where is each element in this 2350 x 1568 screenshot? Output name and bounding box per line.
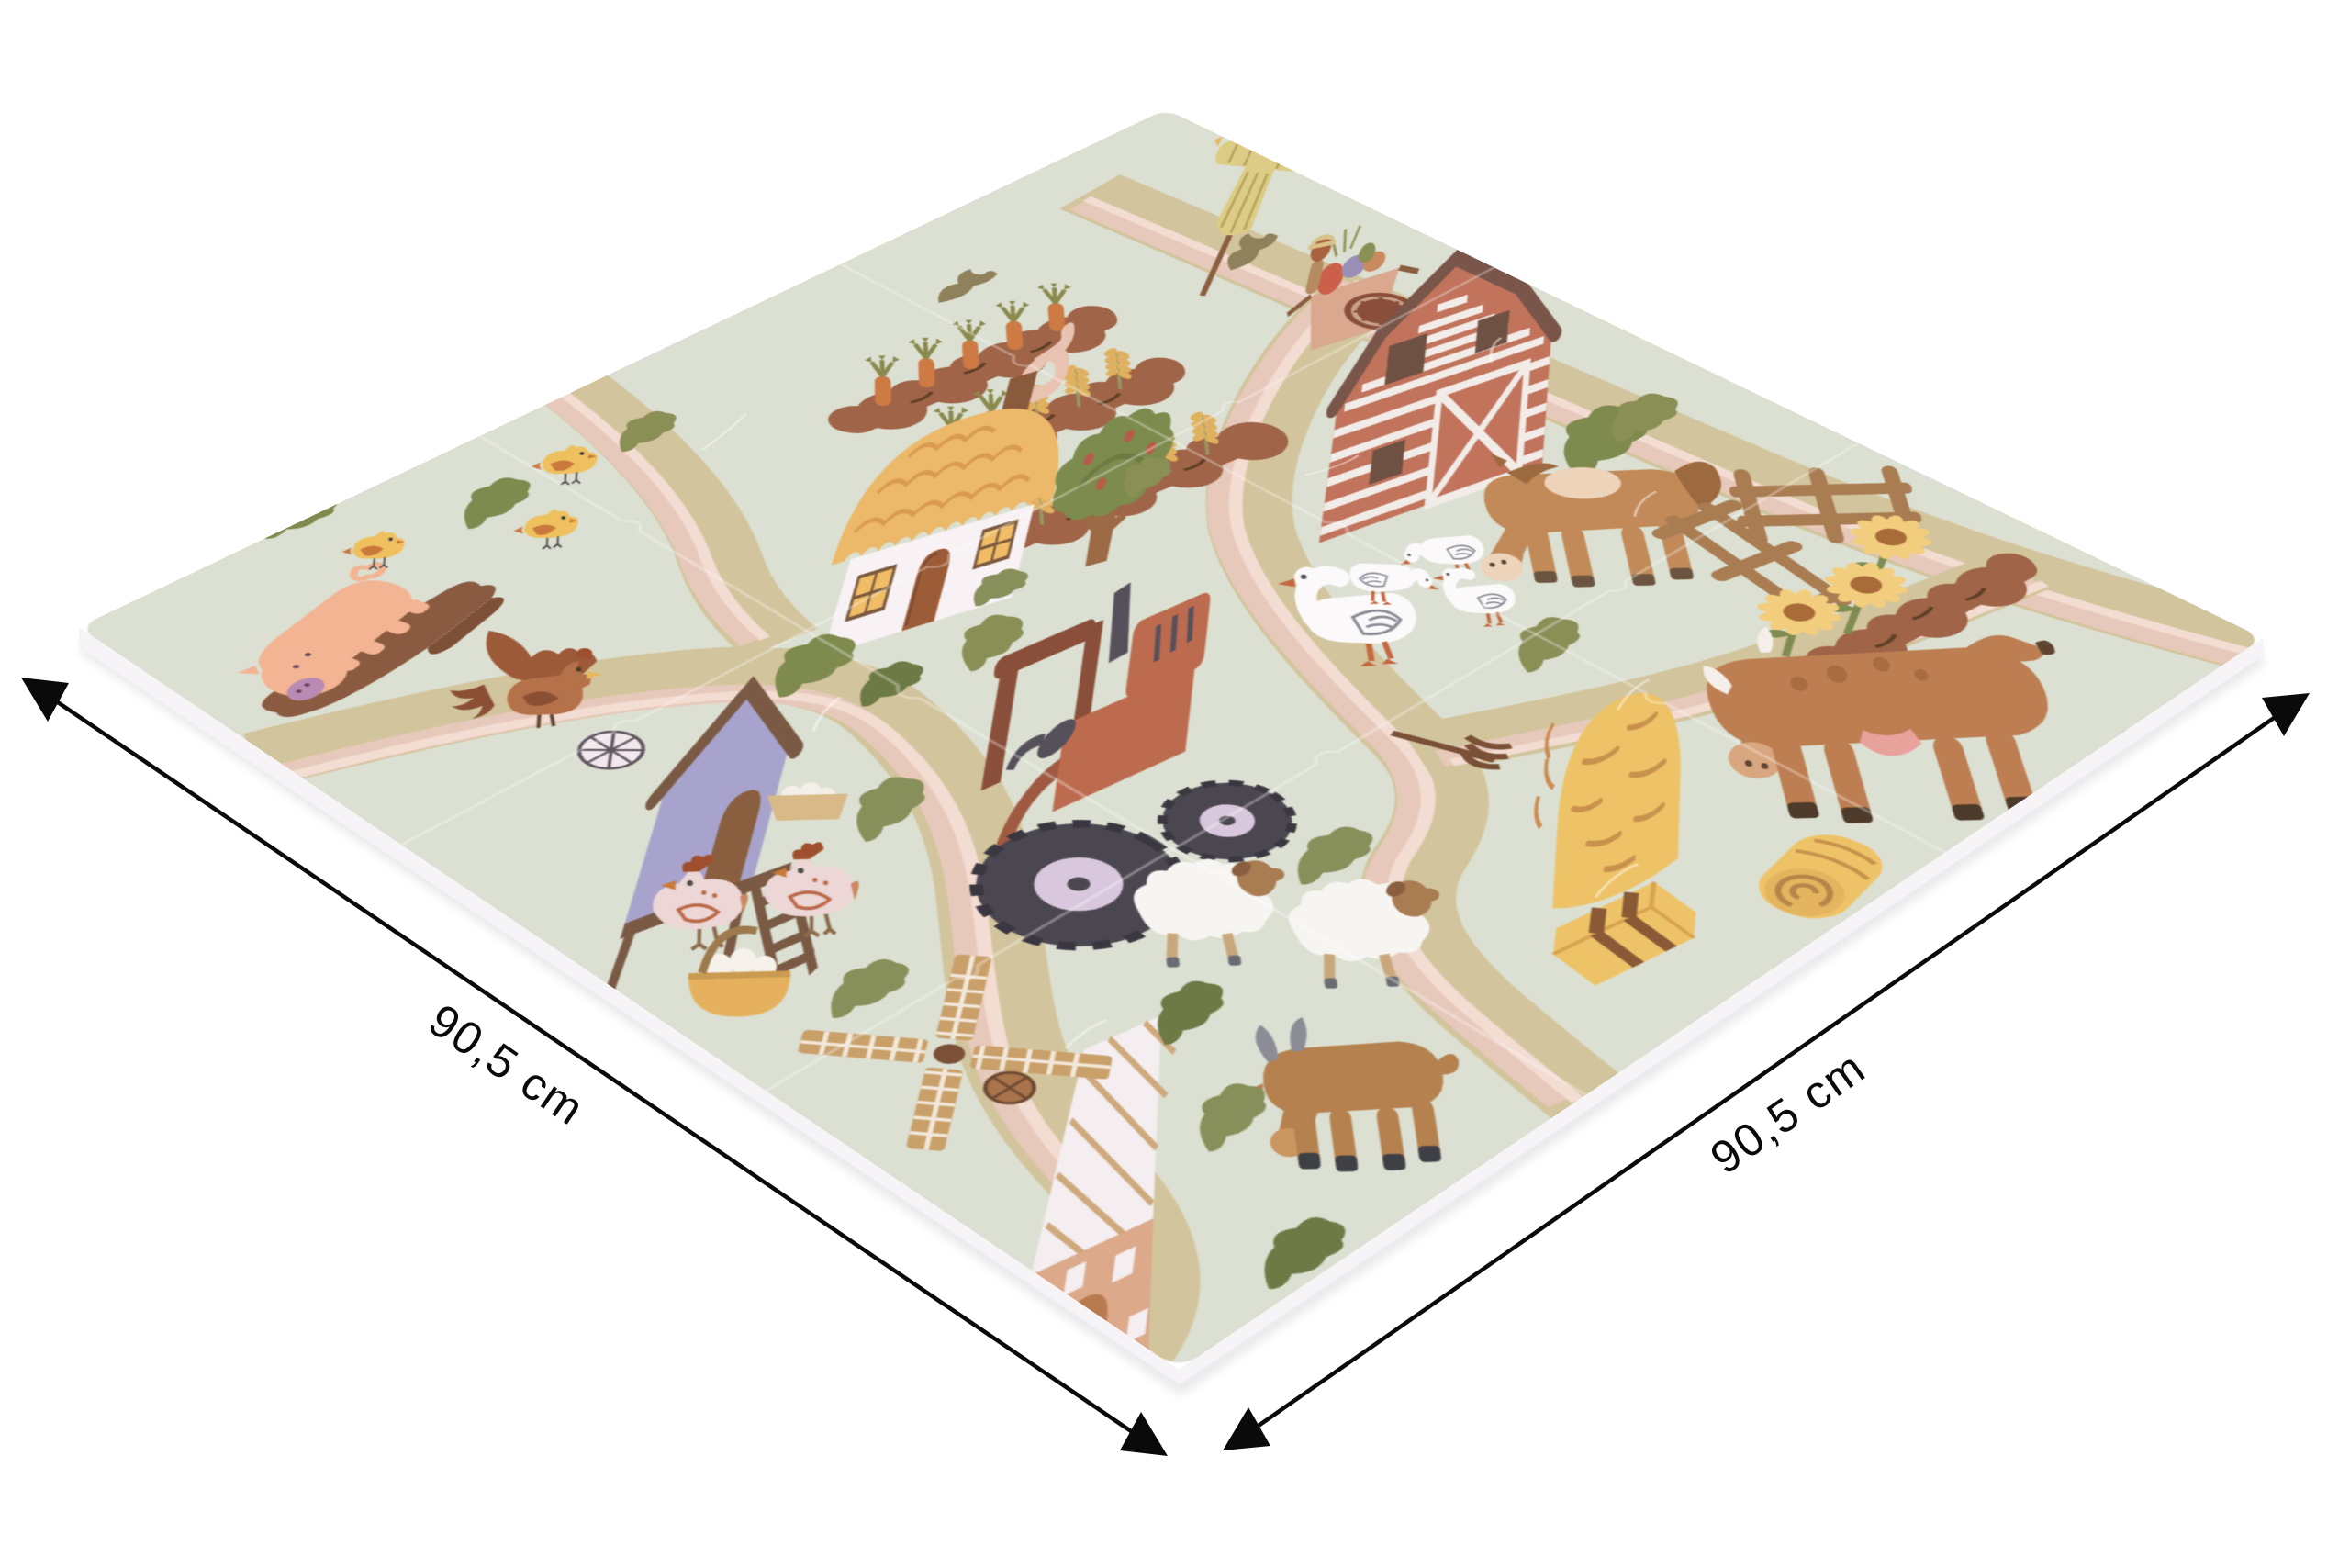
svg-text:90,5 cm: 90,5 cm <box>420 994 594 1136</box>
svg-text:90,5 cm: 90,5 cm <box>1701 1041 1874 1184</box>
